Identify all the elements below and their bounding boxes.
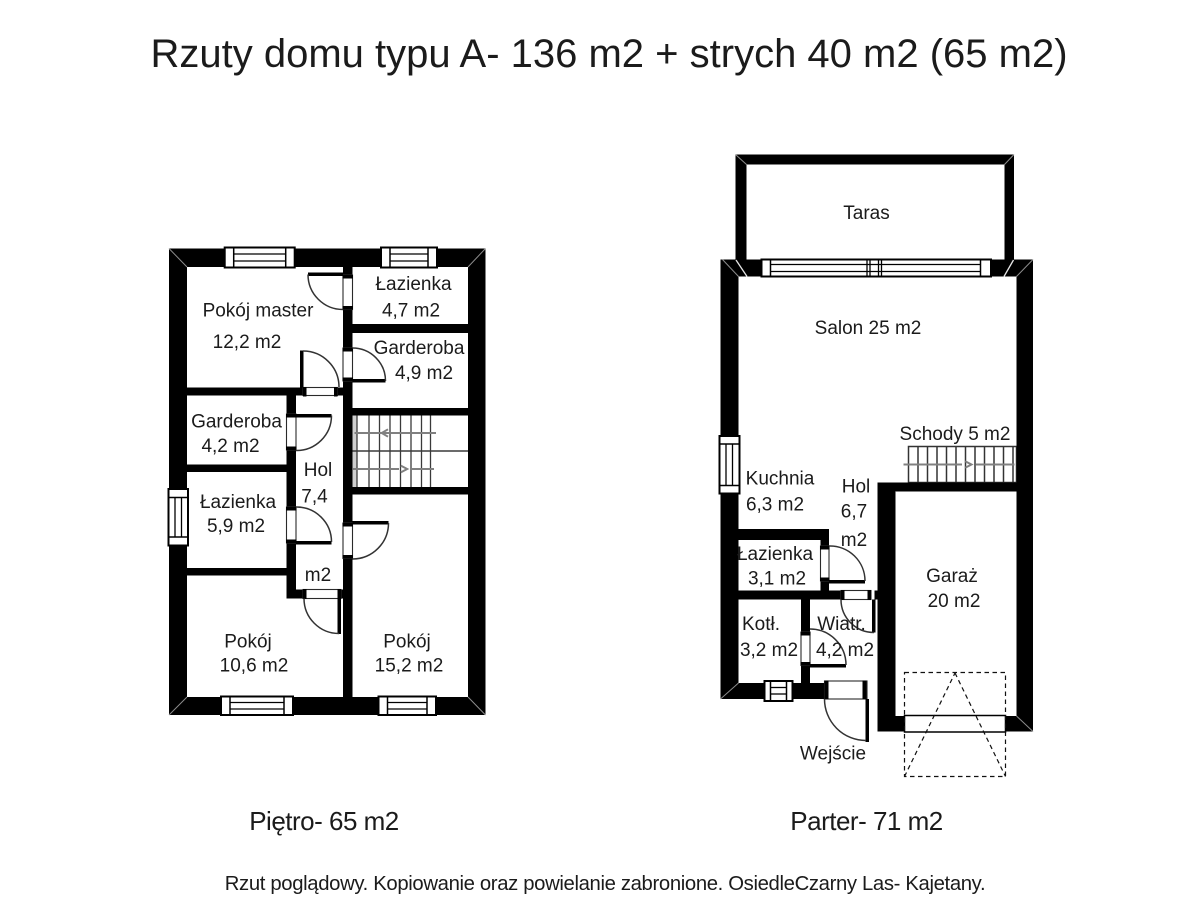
svg-text:20 m2: 20 m2 [928,591,981,612]
svg-text:m2: m2 [841,530,867,551]
svg-text:Łazienka: Łazienka [737,544,813,565]
svg-text:6,7: 6,7 [841,502,867,523]
svg-text:Łazienka: Łazienka [375,274,451,295]
svg-text:10,6 m2: 10,6 m2 [220,656,289,677]
svg-text:m2: m2 [305,565,331,586]
svg-text:4,7 m2: 4,7 m2 [382,300,440,321]
svg-text:Hol: Hol [304,460,333,481]
svg-text:Garderoba: Garderoba [191,412,282,433]
svg-text:3,2 m2: 3,2 m2 [740,640,798,661]
svg-text:Rzuty domu typu A- 136 m2 + st: Rzuty domu typu A- 136 m2 + strych 40 m2… [150,32,1067,76]
svg-text:4,9 m2: 4,9 m2 [395,363,453,384]
svg-text:Piętro- 65 m2: Piętro- 65 m2 [249,806,399,836]
svg-text:3,1 m2: 3,1 m2 [748,569,806,590]
svg-text:6,3 m2: 6,3 m2 [746,495,804,516]
svg-text:Garderoba: Garderoba [374,338,465,359]
svg-text:Pokój master: Pokój master [203,301,315,322]
svg-text:Wiatr.: Wiatr. [817,614,866,635]
svg-text:4,2 m2: 4,2 m2 [816,640,874,661]
svg-text:Wejście: Wejście [800,744,866,765]
svg-text:Garaż: Garaż [926,566,978,587]
svg-text:Łazienka: Łazienka [200,492,276,513]
svg-text:15,2 m2: 15,2 m2 [375,656,444,677]
svg-text:Hol: Hol [842,477,871,498]
svg-text:Salon 25 m2: Salon 25 m2 [815,318,922,339]
svg-text:Parter- 71 m2: Parter- 71 m2 [790,806,942,836]
svg-text:Pokój: Pokój [383,632,431,653]
svg-text:Kuchnia: Kuchnia [746,469,815,490]
svg-text:4,2 m2: 4,2 m2 [201,436,259,457]
svg-text:Rzut poglądowy. Kopiowanie ora: Rzut poglądowy. Kopiowanie oraz powielan… [225,873,986,895]
svg-text:Taras: Taras [843,203,889,224]
svg-text:5,9 m2: 5,9 m2 [207,516,265,537]
svg-text:Pokój: Pokój [224,632,272,653]
svg-text:Schody 5 m2: Schody 5 m2 [900,424,1011,445]
svg-text:12,2 m2: 12,2 m2 [213,332,282,353]
svg-text:7,4: 7,4 [301,487,328,508]
svg-text:Kotł.: Kotł. [742,614,780,635]
